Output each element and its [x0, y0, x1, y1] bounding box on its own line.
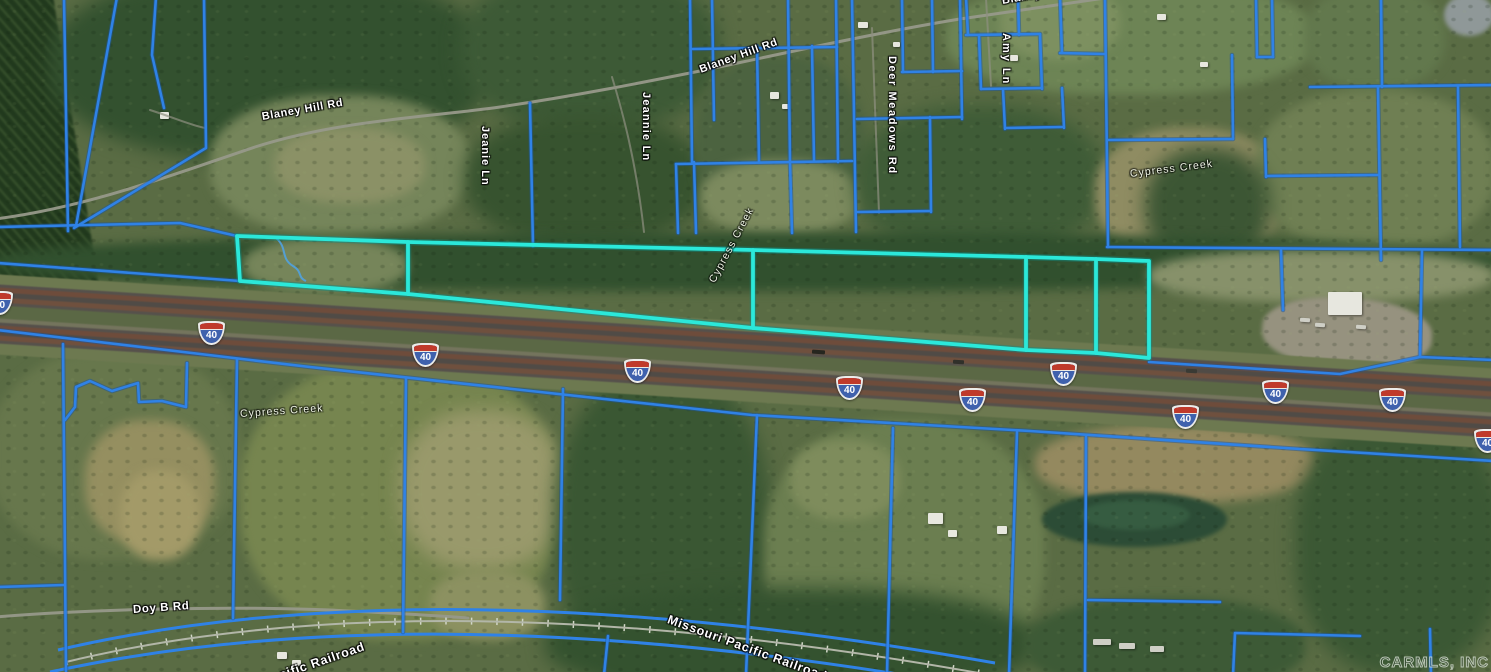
- road-label-jeannie-ln: Jeannie Ln: [640, 92, 652, 161]
- interstate-40-shield: 40: [0, 291, 13, 315]
- interstate-40-shield: 40: [198, 321, 225, 345]
- interstate-40-shield: 40: [624, 359, 651, 383]
- shield-body: 40: [838, 378, 862, 399]
- shield-route-number: 40: [1264, 388, 1288, 403]
- shield-body: 40: [1381, 390, 1405, 411]
- shield-body: 40: [1476, 431, 1491, 452]
- interstate-40-shield: 40: [1262, 380, 1289, 404]
- shield-route-number: 40: [1052, 370, 1076, 385]
- interstate-40-shield: 40: [1474, 429, 1491, 453]
- interstate-40-shield: 40: [1379, 388, 1406, 412]
- amy-ln-road: [986, 0, 991, 86]
- carmls-watermark: CARMLS, INC: [1380, 654, 1489, 671]
- shield-route-number: 40: [838, 384, 862, 399]
- shield-body: 40: [1174, 407, 1198, 428]
- shield-body: 40: [0, 293, 11, 314]
- highlighted-parcel-glow: [237, 236, 1149, 358]
- shield-route-number: 40: [961, 396, 985, 411]
- interstate-40-shield: 40: [412, 343, 439, 367]
- road-label-jeanie-ln: Jeanie Ln: [479, 126, 491, 186]
- shield-route-number: 40: [1381, 396, 1405, 411]
- interstate-40-shield: 40: [836, 376, 863, 400]
- shield-body: 40: [1052, 364, 1076, 385]
- shield-body: 40: [414, 345, 438, 366]
- shield-route-number: 40: [0, 299, 11, 314]
- shield-body: 40: [1264, 382, 1288, 403]
- creek-line: [276, 238, 306, 281]
- shield-route-number: 40: [200, 329, 224, 344]
- shield-route-number: 40: [626, 367, 650, 382]
- road-label-deer-meadows-rd: Deer Meadows Rd: [886, 56, 898, 175]
- shield-route-number: 40: [1476, 437, 1491, 452]
- interstate-40-shield: 40: [1050, 362, 1077, 386]
- shield-body: 40: [961, 390, 985, 411]
- blaney-hill-rd-road: [0, 0, 1105, 219]
- shield-body: 40: [200, 323, 224, 344]
- shield-body: 40: [626, 361, 650, 382]
- road-label-amy-ln: Amy Ln: [1000, 33, 1012, 85]
- driveway: [150, 110, 205, 128]
- shield-route-number: 40: [1174, 413, 1198, 428]
- interstate-40-shield: 40: [959, 388, 986, 412]
- shield-route-number: 40: [414, 351, 438, 366]
- interstate-40-shield: 40: [1172, 405, 1199, 429]
- aerial-parcel-map[interactable]: 40 40 40 40 40 40: [0, 0, 1491, 672]
